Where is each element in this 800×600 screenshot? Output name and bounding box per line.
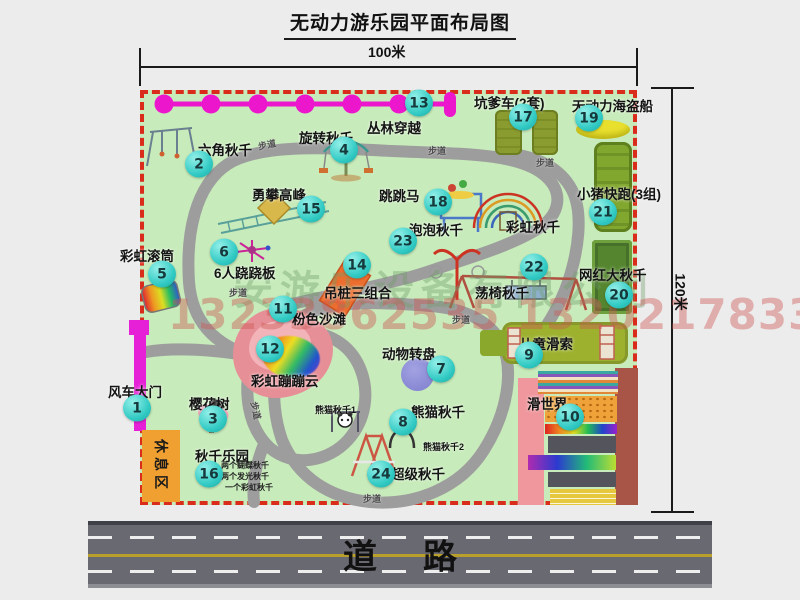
badge-5: 5: [148, 261, 176, 288]
walkway-label-3: 步道: [536, 156, 554, 169]
badge-22: 22: [520, 254, 548, 281]
badge-14: 14: [343, 252, 371, 279]
label-super-swing: 超级秋千: [391, 463, 445, 483]
label-rainbow-bounce-cloud: 彩虹蹦蹦云: [251, 370, 319, 390]
badge-10: 10: [556, 404, 584, 431]
label-panda-swing-2: 熊猫秋千2: [423, 440, 464, 453]
label-climbing-peak: 勇攀高峰: [252, 184, 306, 204]
windmill-gate-top: [129, 320, 149, 335]
badge-1: 1: [123, 395, 151, 422]
label-jungle-crossing: 丛林穿越: [367, 117, 421, 137]
badge-20: 20: [605, 282, 633, 309]
road: 道路: [88, 521, 712, 588]
label-animal-turntable: 动物转盘: [382, 343, 436, 363]
swing-park-note-2: 两个发光秋千: [221, 471, 269, 482]
label-jumping-horse: 跳跳马: [379, 185, 420, 205]
slide-world-wave-band: [550, 489, 616, 505]
badge-9: 9: [515, 342, 543, 369]
swing-park-note-3: 一个彩虹秋千: [225, 482, 273, 493]
badge-16: 16: [195, 461, 223, 488]
badge-7: 7: [427, 356, 455, 383]
label-bubble-swing: 泡泡秋千: [409, 219, 463, 239]
badge-2: 2: [185, 151, 213, 178]
label-pink-beach: 粉色沙滩: [292, 308, 346, 328]
badge-23: 23: [389, 228, 417, 255]
badge-12: 12: [256, 336, 284, 363]
rest-area-box: 休息区: [142, 430, 180, 502]
road-label: 道路: [297, 529, 503, 578]
slide-world-gradient-slide: [528, 455, 616, 470]
slide-world-stripe-lanes: [538, 371, 618, 394]
label-rainbow-swing: 彩虹秋千: [506, 216, 560, 236]
page-title: 无动力游乐园平面布局图: [284, 8, 516, 40]
swing-park-note-1: 两个蝴蝶秋千: [221, 460, 269, 471]
walkway-label-6: 步道: [363, 492, 381, 505]
badge-11: 11: [269, 296, 297, 323]
badge-15: 15: [297, 196, 325, 223]
badge-8: 8: [389, 409, 417, 436]
label-panda-swing: 熊猫秋千: [411, 401, 465, 421]
badge-19: 19: [575, 105, 603, 132]
height-dimension-label: 120米: [671, 273, 691, 310]
label-hanging-post-combo: 吊桩三组合: [324, 282, 392, 302]
badge-18: 18: [424, 189, 452, 216]
slide-world-dark-band-2: [548, 472, 616, 487]
rest-area-label: 休息区: [151, 439, 171, 493]
plan-canvas: 无动力游乐园平面布局图 100米 120米 休息: [0, 0, 800, 600]
badge-24: 24: [367, 461, 395, 488]
label-big-swing: 网红大秋千: [579, 264, 647, 284]
slide-world-rainbow-stripe: [545, 424, 617, 434]
badge-4: 4: [330, 137, 358, 164]
slide-world-dark-band-1: [548, 436, 616, 453]
label-panda-swing-1: 熊猫秋千1: [315, 403, 356, 416]
zipline-platform: [480, 330, 508, 356]
walkway-label-2: 步道: [428, 144, 446, 157]
badge-6: 6: [210, 239, 238, 266]
badge-17: 17: [509, 104, 537, 131]
badge-21: 21: [589, 199, 617, 226]
walkway-label-4: 步道: [229, 286, 247, 299]
width-dimension-label: 100米: [368, 42, 405, 62]
label-swing-chair: 荡椅秋千: [475, 282, 529, 302]
badge-13: 13: [405, 90, 433, 117]
badge-3: 3: [199, 406, 227, 433]
label-pig-run: 小猪快跑(3组): [577, 183, 661, 203]
walkway-label-7: 步道: [452, 313, 470, 326]
slide-world-red-band: [615, 368, 638, 505]
